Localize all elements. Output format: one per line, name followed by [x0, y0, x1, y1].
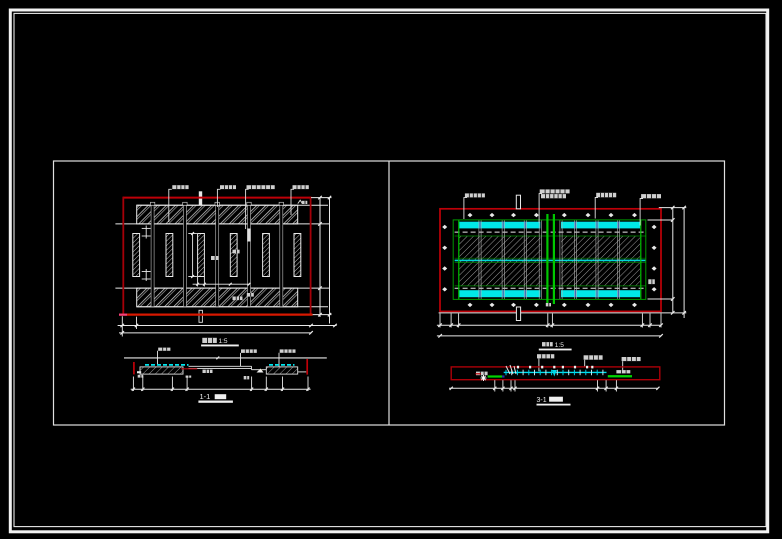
svg-text:1:5: 1:5 [555, 342, 564, 349]
svg-text:1-1: 1-1 [200, 392, 211, 401]
svg-text:3-1: 3-1 [537, 397, 547, 404]
svg-text:1:5: 1:5 [219, 338, 228, 345]
